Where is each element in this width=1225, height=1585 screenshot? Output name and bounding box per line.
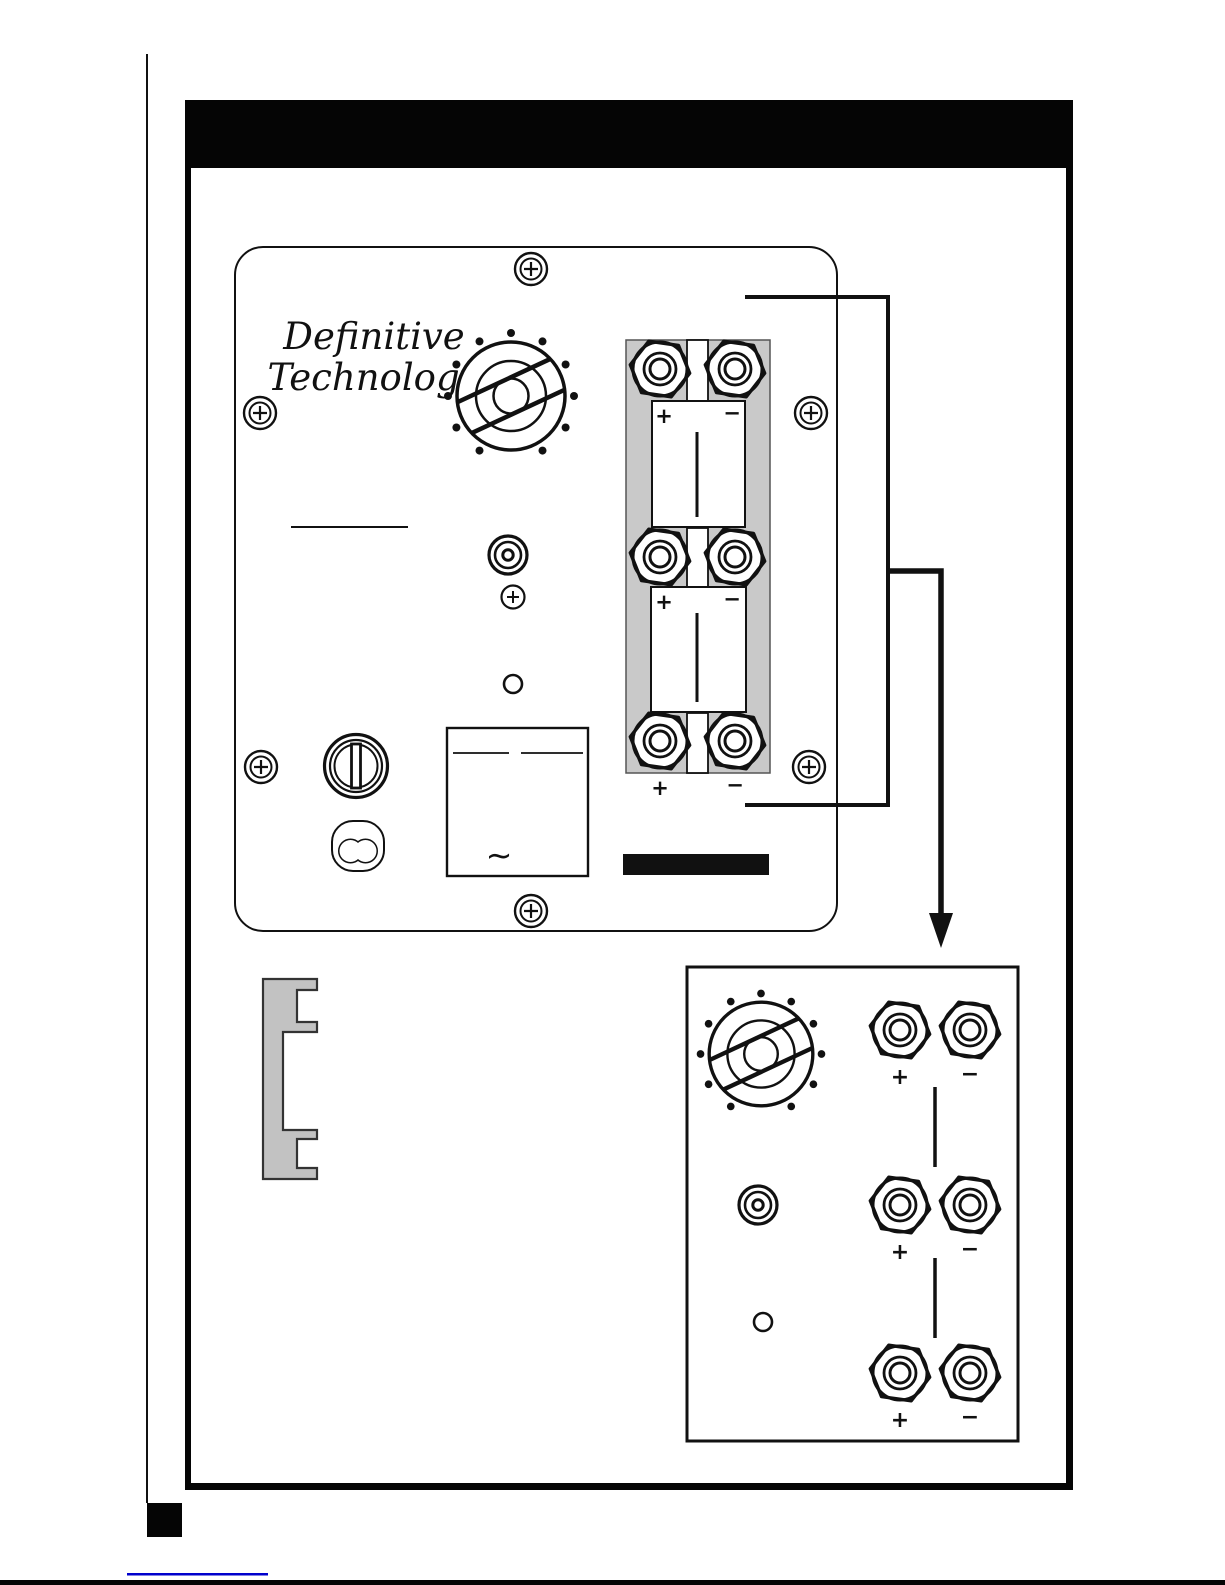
- plus-label: +: [655, 590, 673, 614]
- frame-right-border: [1066, 100, 1073, 1490]
- header-bar: [185, 100, 1073, 168]
- fuse-holder[interactable]: [325, 735, 388, 798]
- power-led: [504, 675, 522, 693]
- minus-label: −: [726, 773, 744, 797]
- screw-icon-right-lower: [793, 751, 825, 783]
- power-switch-box[interactable]: ~: [447, 728, 588, 876]
- lfe-input-jack[interactable]: [489, 536, 527, 574]
- detail-post-plus-1[interactable]: [870, 1002, 929, 1058]
- detail-post-minus-2[interactable]: [940, 1177, 999, 1233]
- screw-icon-bottom: [515, 895, 547, 927]
- detail-post-minus-1[interactable]: [940, 1002, 999, 1058]
- binding-post-minus-1[interactable]: [705, 341, 764, 397]
- callout-arrow: [888, 571, 953, 948]
- frame-left-border: [185, 100, 191, 1490]
- terminal-gap-2: [687, 528, 708, 587]
- binding-post-plus-1[interactable]: [630, 341, 689, 397]
- page-number-block: [147, 1503, 182, 1537]
- detail-post-plus-3[interactable]: [870, 1345, 929, 1401]
- screw-icon-right-upper: [795, 397, 827, 429]
- minus-label: −: [961, 1405, 979, 1430]
- detail-post-plus-2[interactable]: [870, 1177, 929, 1233]
- minus-label: −: [723, 587, 741, 611]
- footer-link-underline[interactable]: [127, 1573, 268, 1576]
- minus-label: −: [961, 1062, 979, 1087]
- wall-bracket-profile: [263, 979, 317, 1179]
- detail-power-led: [754, 1313, 772, 1331]
- binding-post-minus-3[interactable]: [705, 713, 764, 769]
- brand-logo: Definitive Technology: [267, 315, 481, 399]
- minus-label: −: [961, 1237, 979, 1262]
- screw-icon-left-lower: [245, 751, 277, 783]
- plus-label: +: [891, 1065, 909, 1090]
- ac-pin-slots: [340, 840, 377, 862]
- plus-label: +: [891, 1240, 909, 1265]
- terminal-block: + − + − + −: [626, 340, 770, 800]
- plus-label: +: [651, 776, 669, 800]
- manual-page: Definitive Technology + − + − + −: [0, 0, 1225, 1585]
- binding-post-minus-2[interactable]: [705, 529, 764, 585]
- screw-icon-top: [515, 253, 547, 285]
- binding-post-plus-3[interactable]: [630, 713, 689, 769]
- rear-panel-diagram: Definitive Technology + − + − + −: [0, 0, 1225, 1585]
- ac-power-inlet[interactable]: [332, 821, 384, 871]
- rating-badge: [623, 854, 769, 875]
- plus-label: +: [891, 1408, 909, 1433]
- fuse-slot: [352, 744, 361, 788]
- detail-lfe-input-jack[interactable]: [739, 1186, 777, 1224]
- page-fold-line: [146, 54, 148, 1503]
- arrow-head-icon: [929, 913, 953, 948]
- detail-post-minus-3[interactable]: [940, 1345, 999, 1401]
- frame-bottom-border: [185, 1483, 1073, 1490]
- minus-label: −: [723, 401, 741, 425]
- screw-icon-left-upper: [244, 397, 276, 429]
- plus-label: +: [655, 404, 673, 428]
- ac-tilde-label: ~: [486, 836, 513, 874]
- detail-panel: + − + − + −: [687, 967, 1018, 1441]
- screw-icon-small: [502, 586, 525, 609]
- page-bottom-rule: [0, 1580, 1225, 1585]
- logo-line-1: Definitive: [282, 315, 464, 358]
- binding-post-plus-2[interactable]: [630, 529, 689, 585]
